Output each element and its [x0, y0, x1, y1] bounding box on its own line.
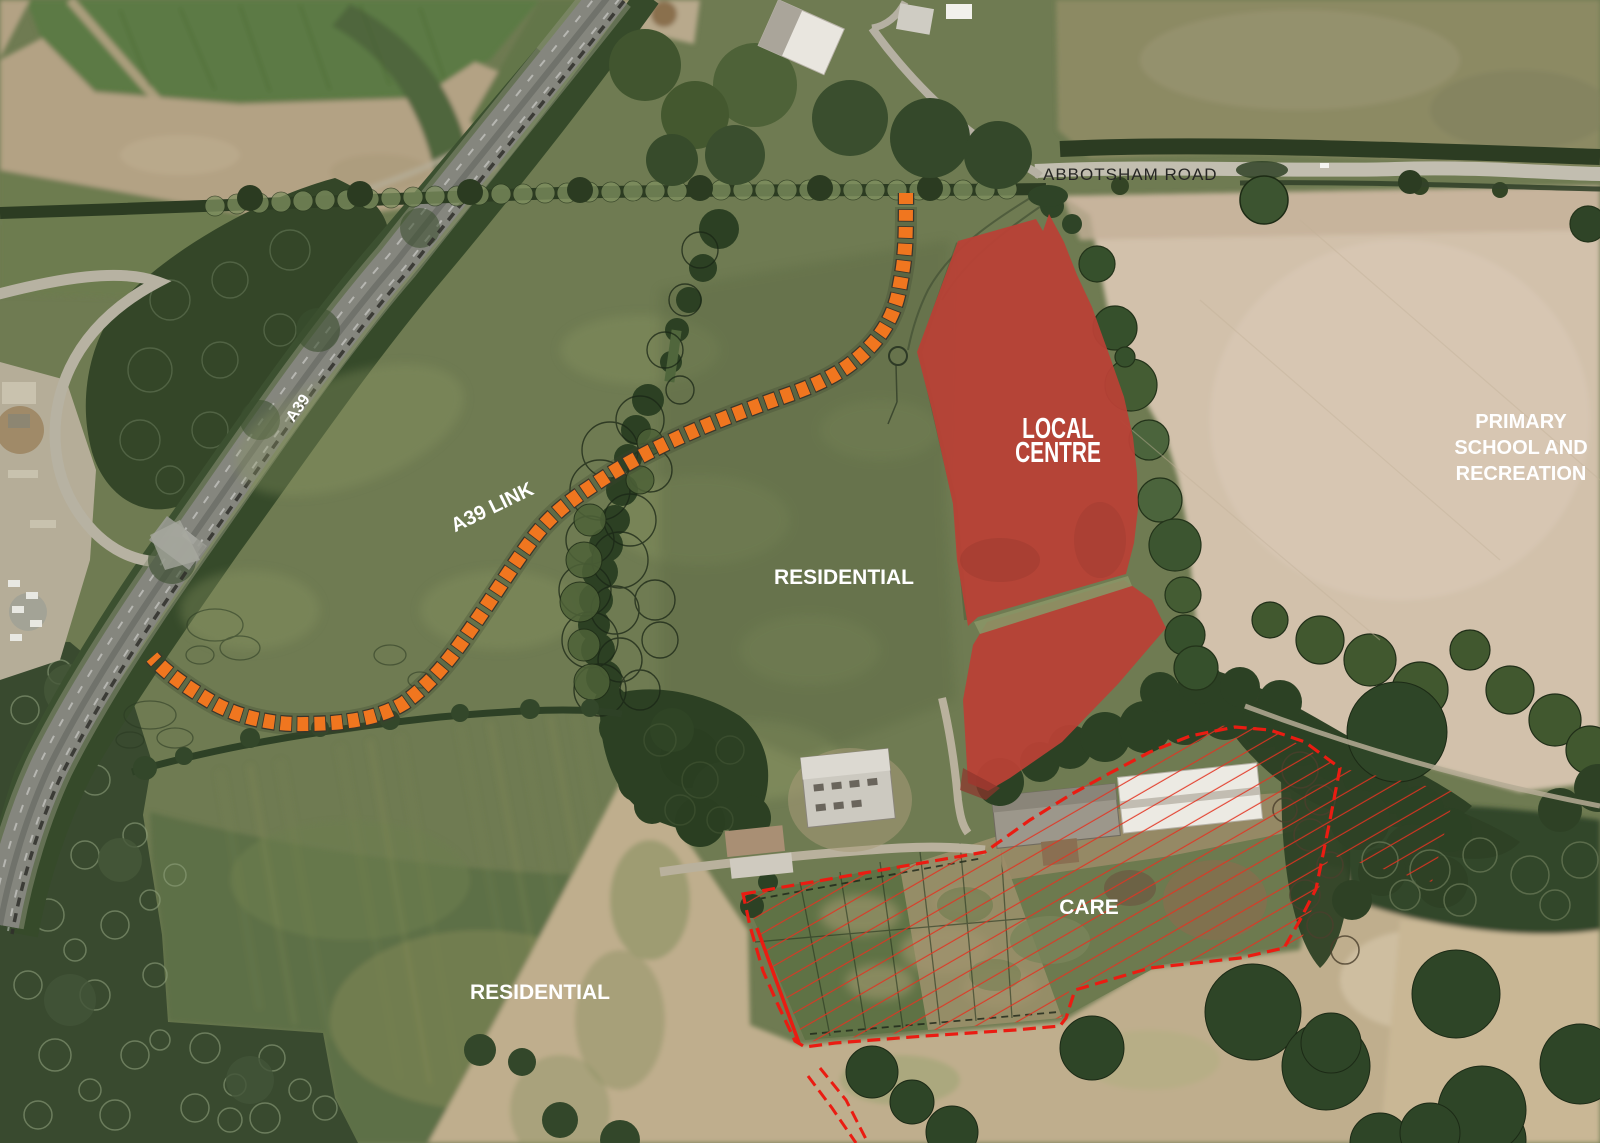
svg-text:RECREATION: RECREATION: [1456, 463, 1587, 485]
svg-text:SCHOOL AND: SCHOOL AND: [1454, 437, 1587, 459]
svg-text:CARE: CARE: [1059, 896, 1119, 919]
svg-text:RESIDENTIAL: RESIDENTIAL: [470, 981, 610, 1004]
svg-text:ABBOTSHAM ROAD: ABBOTSHAM ROAD: [1043, 165, 1218, 184]
svg-text:RESIDENTIAL: RESIDENTIAL: [774, 566, 914, 589]
svg-text:PRIMARY: PRIMARY: [1475, 411, 1567, 433]
svg-text:CENTRE: CENTRE: [1015, 437, 1101, 469]
